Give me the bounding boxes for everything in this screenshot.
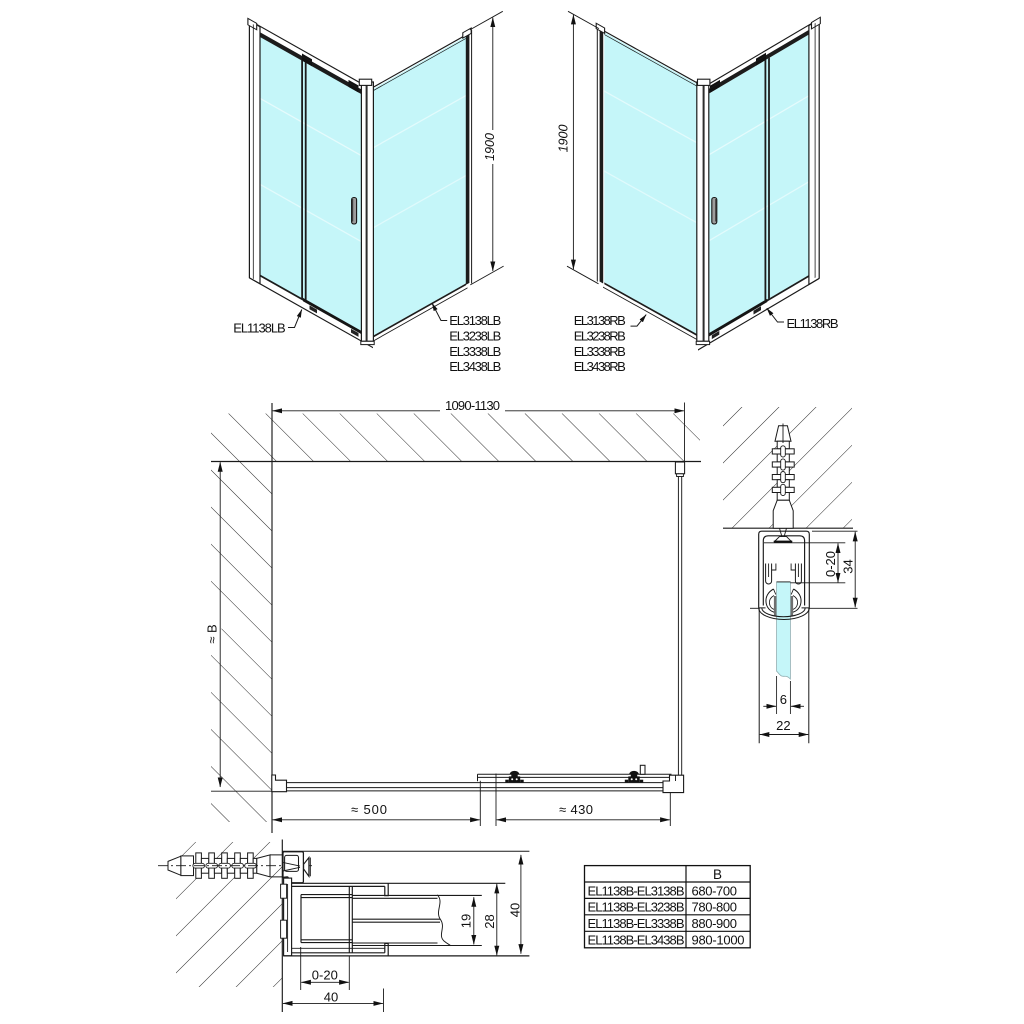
svg-text:EL1138B-EL3238B: EL1138B-EL3238B xyxy=(588,900,685,915)
svg-text:B: B xyxy=(713,867,722,882)
svg-text:40: 40 xyxy=(507,903,522,917)
svg-text:880-900: 880-900 xyxy=(692,916,738,931)
svg-text:34: 34 xyxy=(841,559,856,573)
svg-text:22: 22 xyxy=(776,718,790,733)
svg-text:28: 28 xyxy=(482,914,497,928)
svg-text:0-20: 0-20 xyxy=(823,551,838,577)
svg-text:EL3138RB: EL3138RB xyxy=(574,313,626,328)
svg-text:EL3238LB: EL3238LB xyxy=(449,329,501,344)
svg-text:780-800: 780-800 xyxy=(692,900,738,915)
svg-text:EL1138B-EL3138B: EL1138B-EL3138B xyxy=(588,883,685,898)
svg-text:EL3138LB: EL3138LB xyxy=(449,313,501,328)
svg-text:1900: 1900 xyxy=(483,133,497,161)
svg-text:≈ 430: ≈ 430 xyxy=(559,802,593,817)
svg-text:0-20: 0-20 xyxy=(312,968,338,983)
svg-text:1900: 1900 xyxy=(556,125,570,153)
svg-text:EL3438RB: EL3438RB xyxy=(574,359,626,374)
svg-text:EL1138LB: EL1138LB xyxy=(233,320,286,335)
svg-text:6: 6 xyxy=(780,692,787,707)
svg-text:EL3238RB: EL3238RB xyxy=(574,329,626,344)
svg-text:≈ B: ≈ B xyxy=(205,624,220,643)
svg-text:EL3338RB: EL3338RB xyxy=(574,344,626,359)
svg-text:EL1138RB: EL1138RB xyxy=(787,316,839,331)
svg-text:EL1138B-EL3438B: EL1138B-EL3438B xyxy=(588,933,685,948)
svg-text:1090-1130: 1090-1130 xyxy=(445,398,500,413)
svg-text:980-1000: 980-1000 xyxy=(692,933,745,948)
svg-text:≈ 500: ≈ 500 xyxy=(351,802,387,817)
svg-text:EL3338LB: EL3338LB xyxy=(449,344,501,359)
svg-text:EL3438LB: EL3438LB xyxy=(449,359,501,374)
svg-text:19: 19 xyxy=(459,914,474,928)
svg-text:EL1138B-EL3338B: EL1138B-EL3338B xyxy=(588,916,685,931)
svg-text:40: 40 xyxy=(324,990,338,1005)
svg-text:680-700: 680-700 xyxy=(692,883,738,898)
